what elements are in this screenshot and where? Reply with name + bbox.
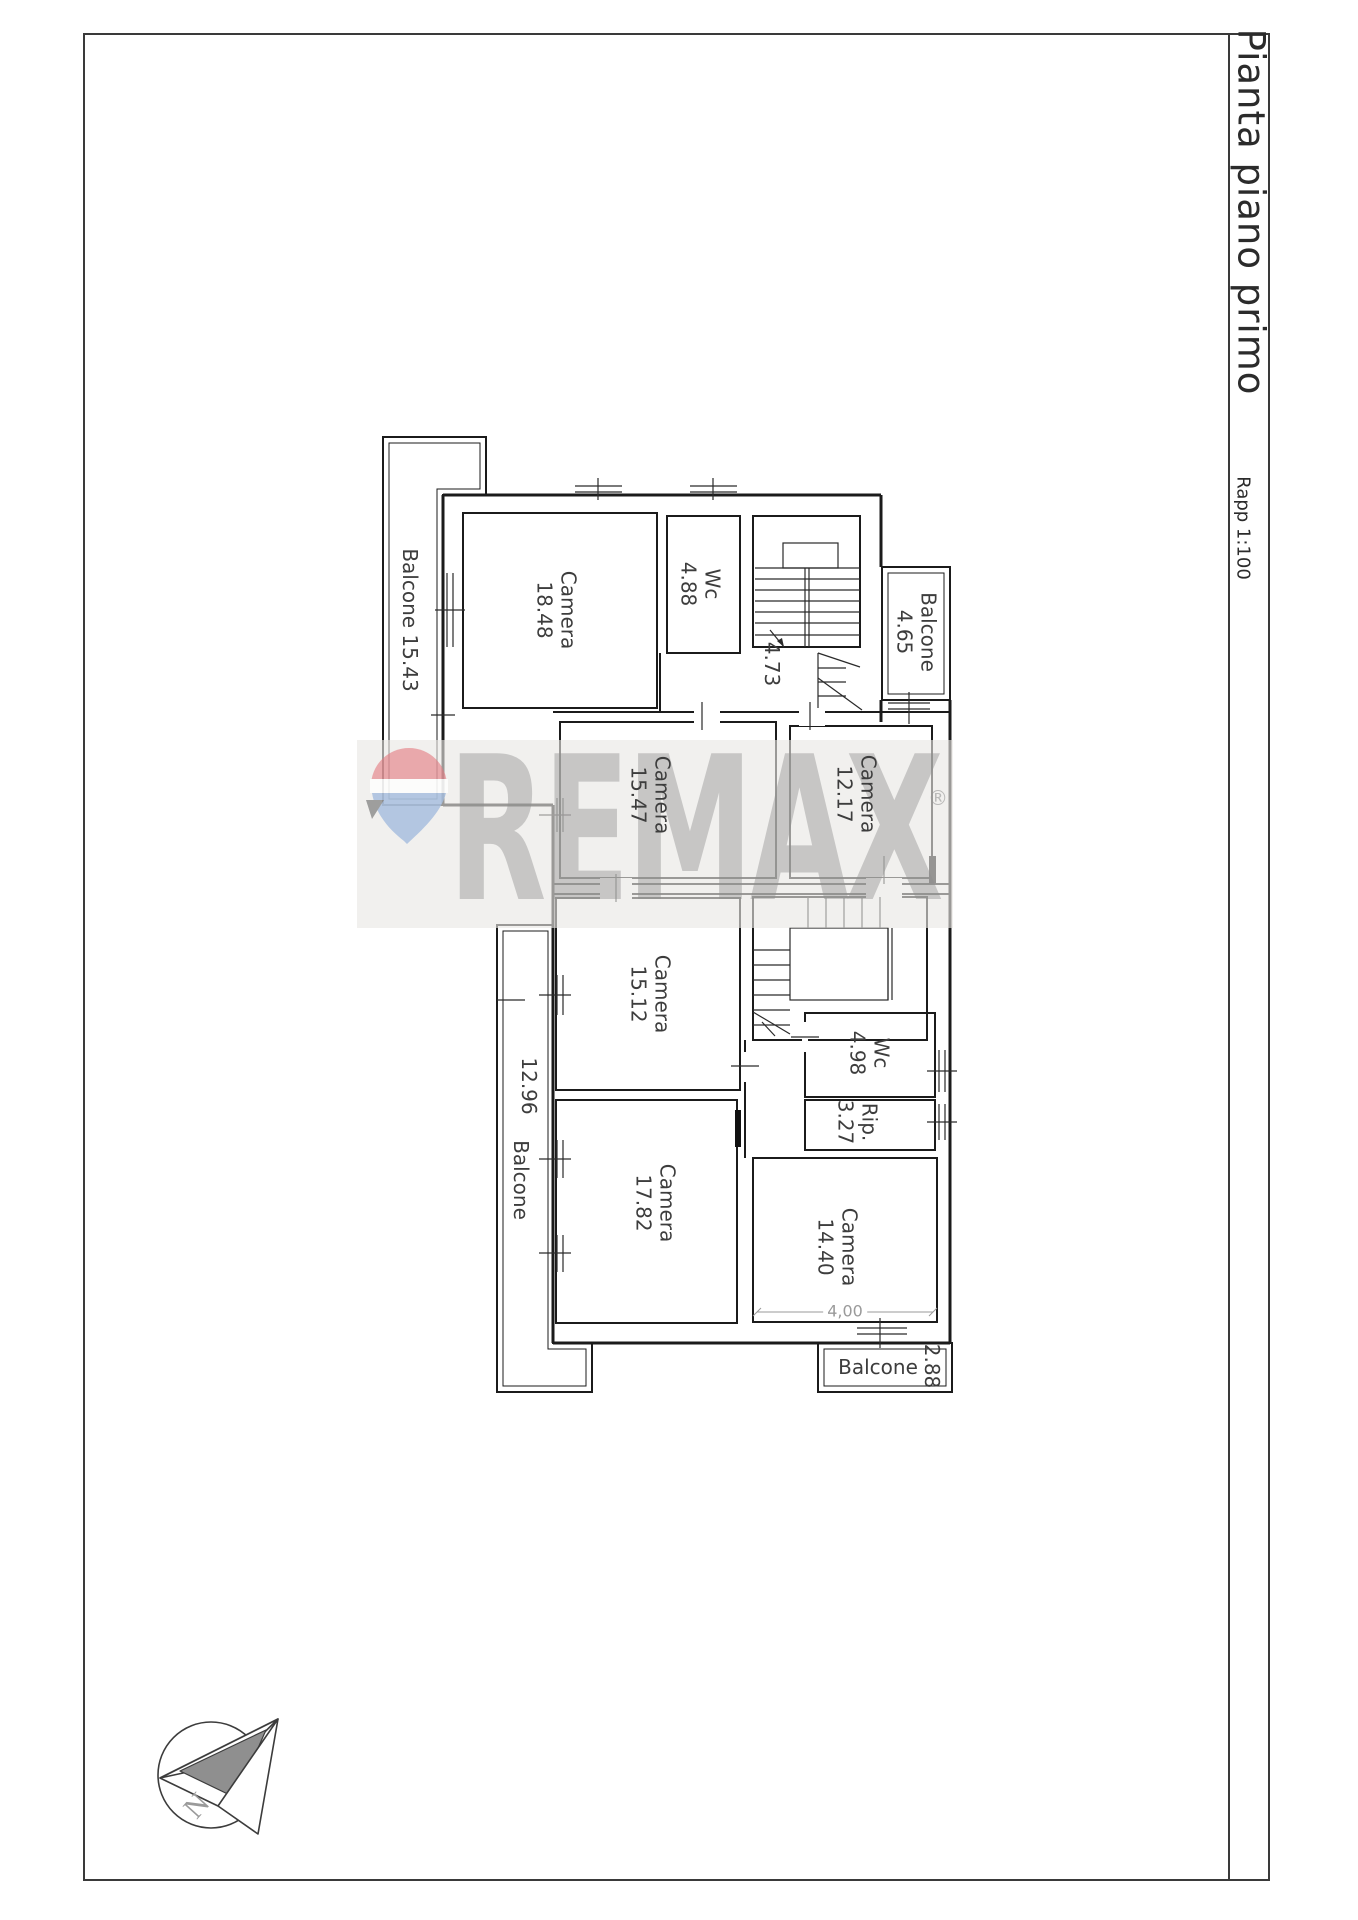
room-label-rip: Rip. 3.27 [833,1100,880,1145]
watermark-balloon [0,0,1358,1920]
room-label-balcone-w-area: 12.96 [516,1057,540,1114]
page: REMAX ® Balcone 15.43 Camera 18.48 Wc 4.… [0,0,1358,1920]
room-label-camera-sw: Camera 17.82 [631,1164,678,1243]
room-label-balcone-s-name: Balcone [838,1355,918,1379]
room-label-camera-se: Camera 14.40 [813,1208,860,1287]
room-label-camera-mw: Camera 15.12 [626,955,673,1034]
room-label-balcone-w-name: Balcone [508,1140,532,1220]
scale-label: Rapp 1:100 [1233,476,1254,580]
room-label-balcone-s-area: 2.88 [919,1344,943,1389]
dimension-label: 4,00 [823,1302,867,1321]
room-label-camera-nw: Camera 18.48 [532,571,579,650]
room-label-camera-w: Camera 15.47 [626,756,673,835]
watermark-brand: REMAX [448,756,781,906]
room-label-balcone-nw: Balcone 15.43 [397,548,421,691]
registered-mark: ® [928,786,948,810]
page-title: Pianta piano primo [1230,29,1273,396]
room-label-hall-area: 4.73 [759,642,783,687]
room-label-balcone-ne: Balcone 4.65 [892,592,939,672]
room-label-camera-e: Camera 12.17 [832,755,879,834]
room-label-wc-top: Wc 4.88 [676,562,723,607]
room-label-wc-bottom: Wc 4.98 [845,1031,892,1076]
